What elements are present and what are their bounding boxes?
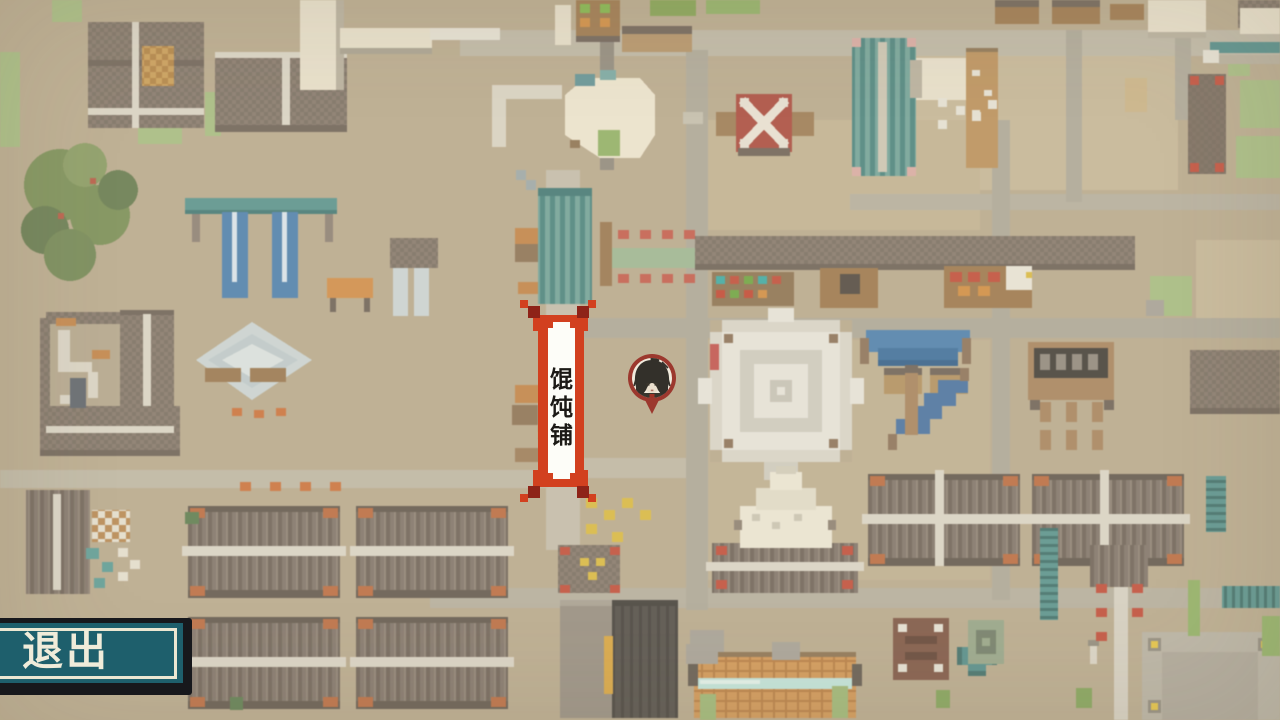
banner-corner-pixel: [520, 300, 528, 308]
location-banner[interactable]: 馄饨铺: [520, 298, 598, 504]
banner-corner-square: [528, 306, 540, 318]
exit-button[interactable]: 退出: [0, 618, 192, 695]
exit-button-label: 退出: [22, 631, 110, 672]
banner-panel-notch: [553, 471, 570, 479]
banner-corner-pixel: [588, 300, 596, 308]
banner-corner-square: [577, 486, 589, 498]
location-banner-label: 馄饨铺: [548, 366, 575, 450]
banner-corner-square: [528, 486, 540, 498]
banner-corner-square: [577, 306, 589, 318]
banner-corner-pixel: [588, 494, 596, 502]
banner-corner-pixel: [520, 494, 528, 502]
player-marker-pin[interactable]: [626, 352, 678, 416]
game-screen: 馄饨铺 退出: [0, 0, 1280, 720]
